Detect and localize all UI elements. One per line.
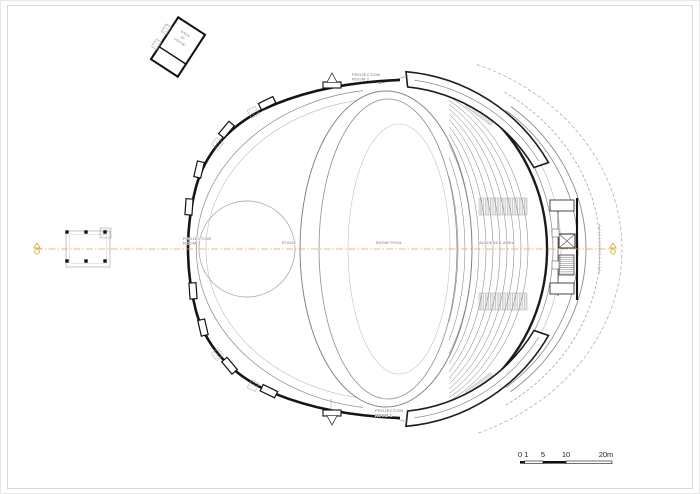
exit-door bbox=[247, 97, 277, 119]
scale-tick-20m: 20m bbox=[599, 450, 614, 459]
drawing-sheet: BACK OF HOUSE PROJECTION ROOM 2 PROJECTI… bbox=[0, 0, 700, 494]
door-leaf bbox=[189, 283, 197, 299]
booth-stairs bbox=[559, 255, 574, 275]
left-pavilion bbox=[65, 228, 111, 267]
scale-bar: 0 1 5 10 20m bbox=[518, 450, 613, 464]
audience-area-label: AUDIENCE AREA bbox=[479, 240, 515, 245]
scale-tick-10: 10 bbox=[562, 450, 570, 459]
exit-door bbox=[211, 347, 237, 376]
door-leaf bbox=[198, 319, 208, 336]
show-pool-label: SHOW POOL bbox=[376, 240, 403, 245]
exit-door bbox=[185, 199, 193, 215]
door-triangle-marker-top bbox=[327, 73, 337, 83]
door-leaf bbox=[194, 161, 204, 178]
axis-marker-right bbox=[610, 243, 616, 254]
back-of-house-building: BACK OF HOUSE bbox=[146, 14, 206, 77]
exit-door bbox=[198, 319, 208, 336]
scale-segment-5-10 bbox=[543, 461, 566, 464]
scale-tick-5: 5 bbox=[541, 450, 545, 459]
aisle-stairs-hatch-upper bbox=[479, 198, 527, 215]
exit-door bbox=[210, 121, 236, 150]
floor-plan-svg: BACK OF HOUSE PROJECTION ROOM 2 PROJECTI… bbox=[0, 0, 700, 494]
booth-room-bottom bbox=[550, 283, 574, 294]
exit-door bbox=[247, 379, 277, 401]
scale-segment-0-1 bbox=[520, 461, 525, 464]
scale-tick-1: 1 bbox=[524, 450, 528, 459]
exit-door bbox=[194, 161, 204, 178]
top-centre-door bbox=[323, 73, 341, 88]
projection-room-1-label-2: ROOM 1 bbox=[375, 413, 393, 418]
door-leaf bbox=[185, 199, 193, 215]
booth-room-top bbox=[550, 200, 574, 211]
sheet-edge bbox=[1, 1, 700, 494]
exit-door bbox=[189, 283, 197, 299]
scale-tick-0: 0 bbox=[518, 450, 522, 459]
scale-segment-1-5 bbox=[525, 461, 543, 464]
axis-marker-left bbox=[34, 243, 40, 254]
bottom-centre-door bbox=[323, 398, 341, 425]
projection-room-2-label-2: ROOM 2 bbox=[352, 77, 370, 82]
door-leaf bbox=[260, 385, 277, 398]
aisle-stairs-hatch-lower bbox=[479, 293, 527, 310]
projection-room-3-label-2: ROOM 3 bbox=[183, 241, 201, 246]
door-triangle-marker-bottom bbox=[327, 416, 337, 426]
shell-outer-wall bbox=[188, 80, 400, 418]
door-leaf bbox=[222, 357, 238, 374]
scale-segment-10-20 bbox=[566, 461, 612, 464]
stage-label: STAGE bbox=[282, 240, 297, 245]
